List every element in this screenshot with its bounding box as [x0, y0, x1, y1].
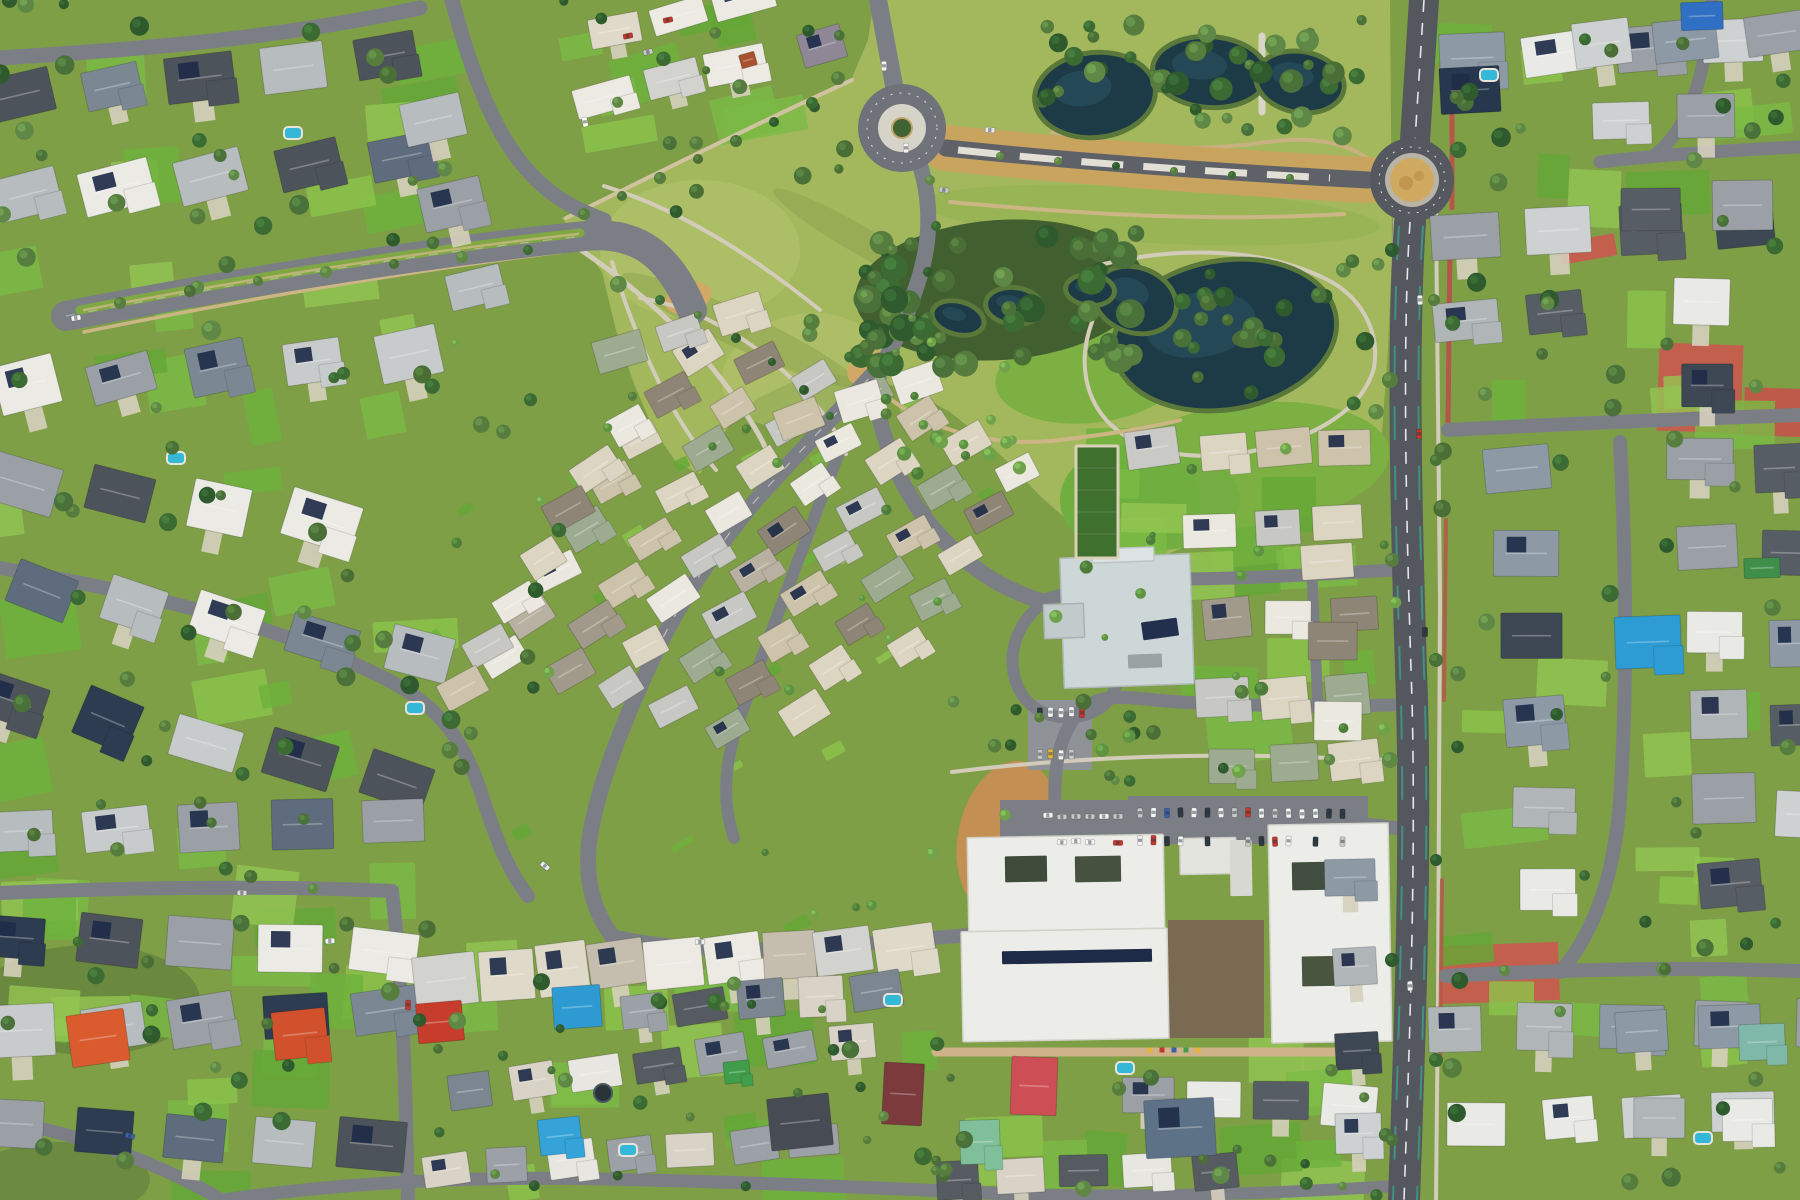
- house: [258, 924, 323, 972]
- tree-highlight: [1202, 296, 1210, 304]
- tree-highlight: [1501, 966, 1506, 971]
- tree-highlight: [1191, 105, 1196, 110]
- tree-highlight: [808, 99, 813, 104]
- tree-highlight: [888, 246, 893, 251]
- tree-highlight: [1071, 316, 1079, 324]
- tree-highlight: [1081, 562, 1087, 568]
- car: [1272, 808, 1277, 818]
- car: [1151, 835, 1156, 845]
- tree-highlight: [1126, 17, 1135, 26]
- tree-highlight: [1199, 1156, 1204, 1161]
- tree-highlight: [56, 494, 65, 503]
- car: [1191, 808, 1197, 818]
- house: [478, 948, 536, 1002]
- house: [362, 799, 425, 844]
- tree-highlight: [1768, 240, 1776, 248]
- tree-highlight: [1124, 731, 1130, 737]
- tree-highlight: [444, 744, 452, 752]
- tree-highlight: [936, 333, 941, 338]
- tree-highlight: [330, 964, 335, 969]
- building-detail: [1002, 949, 1152, 965]
- tree-highlight: [1672, 798, 1677, 803]
- tree-highlight: [1042, 22, 1048, 28]
- tree-highlight: [935, 272, 945, 282]
- house: [1124, 426, 1181, 471]
- tree-highlight: [1282, 72, 1293, 83]
- car: [1326, 809, 1332, 819]
- tree-highlight: [1451, 92, 1457, 98]
- building: [967, 834, 1165, 931]
- tree-highlight: [748, 1001, 752, 1005]
- tree-highlight: [97, 800, 102, 805]
- tree-highlight: [1453, 742, 1459, 748]
- tree-highlight: [491, 1170, 495, 1174]
- tree-highlight: [1340, 724, 1344, 728]
- tree-highlight: [1124, 347, 1134, 357]
- house: [1738, 1023, 1787, 1066]
- tree-highlight: [1381, 541, 1385, 545]
- tree-highlight: [864, 1137, 868, 1141]
- tree-highlight: [1480, 616, 1488, 624]
- tree-highlight: [811, 910, 815, 914]
- tree-highlight: [1325, 64, 1335, 74]
- tree-highlight: [612, 278, 620, 286]
- tree-highlight: [1437, 445, 1445, 453]
- tree-highlight: [928, 849, 933, 854]
- tree-highlight: [1081, 303, 1091, 313]
- tree-highlight: [1360, 1093, 1365, 1098]
- tree-highlight: [341, 919, 348, 926]
- tree-highlight: [161, 515, 169, 523]
- car: [1340, 837, 1345, 847]
- tree-highlight: [466, 728, 472, 734]
- tree-highlight: [861, 266, 868, 273]
- tree-highlight: [1430, 296, 1435, 301]
- house: [766, 1093, 833, 1151]
- car: [1313, 808, 1319, 818]
- house: [1265, 601, 1313, 640]
- tree-highlight: [1077, 1183, 1084, 1190]
- tree-highlight: [1469, 275, 1478, 284]
- tree-highlight: [687, 1114, 691, 1118]
- tree-highlight: [1237, 571, 1242, 576]
- tree-highlight: [882, 395, 887, 400]
- tree-highlight: [1661, 965, 1666, 970]
- house: [421, 1151, 471, 1189]
- house: [665, 1132, 714, 1168]
- tree-highlight: [860, 596, 863, 599]
- house: [1722, 1098, 1775, 1148]
- tree-highlight: [1335, 129, 1344, 138]
- tree-highlight: [884, 289, 896, 301]
- tree-highlight: [695, 312, 699, 316]
- tree-highlight: [1188, 465, 1193, 470]
- lawn-patch: [1643, 732, 1692, 778]
- tree-highlight: [1447, 318, 1454, 325]
- tree-highlight: [1370, 406, 1377, 413]
- tree-highlight: [1266, 348, 1276, 358]
- tree-highlight: [132, 19, 141, 28]
- tree-highlight: [390, 260, 395, 265]
- tree-highlight: [1542, 298, 1548, 304]
- car: [1178, 808, 1184, 818]
- tree-highlight: [1001, 363, 1006, 368]
- tree-highlight: [211, 1063, 216, 1068]
- tree-highlight: [597, 14, 602, 19]
- lawn-patch: [1121, 503, 1187, 534]
- tree-highlight: [956, 354, 968, 366]
- tree-highlight: [1775, 1163, 1780, 1168]
- tree-highlight: [1229, 172, 1233, 176]
- tree-highlight: [1445, 1061, 1454, 1070]
- tree-highlight: [1387, 245, 1393, 251]
- tree-highlight: [1718, 1103, 1724, 1109]
- tree-highlight: [292, 197, 301, 206]
- car: [1178, 836, 1184, 846]
- tree-highlight: [60, 0, 65, 5]
- tree-highlight: [819, 1006, 823, 1010]
- tree-highlight: [1358, 16, 1363, 21]
- tree-highlight: [844, 1043, 852, 1051]
- tree-highlight: [1234, 766, 1240, 772]
- tree-highlight: [1090, 346, 1098, 354]
- house: [1494, 530, 1559, 576]
- tree-highlight: [936, 436, 942, 442]
- tree-highlight: [1266, 1156, 1271, 1161]
- tree-highlight: [1014, 463, 1020, 469]
- car: [1313, 837, 1318, 847]
- tree-highlight: [13, 374, 20, 381]
- tree-highlight: [1348, 398, 1354, 404]
- tree-highlight: [110, 196, 118, 204]
- tree-highlight: [263, 1019, 268, 1024]
- playground-object: [1148, 1048, 1153, 1053]
- tree-highlight: [1384, 374, 1391, 381]
- house: [1769, 620, 1800, 668]
- road: [0, 888, 392, 893]
- tree-highlight: [838, 142, 846, 150]
- tree-highlight: [1036, 714, 1041, 719]
- tree-highlight: [537, 497, 541, 501]
- tree-highlight: [1153, 72, 1164, 83]
- tree-highlight: [544, 668, 549, 673]
- tree-highlight: [1538, 350, 1543, 355]
- tree-highlight: [932, 1039, 938, 1045]
- car: [1071, 838, 1081, 843]
- tree-highlight: [829, 1046, 834, 1051]
- tree-highlight: [694, 155, 699, 160]
- tree-highlight: [835, 31, 840, 36]
- house: [812, 925, 874, 977]
- lawn-patch: [1659, 876, 1699, 905]
- tree-highlight: [458, 253, 463, 258]
- building: [1076, 446, 1118, 558]
- car: [1071, 814, 1081, 819]
- house: [1428, 1006, 1482, 1053]
- tree-highlight: [1731, 483, 1736, 488]
- sand-mottle: [1399, 176, 1413, 190]
- tree-highlight: [237, 769, 243, 775]
- tree-highlight: [958, 1133, 966, 1141]
- tree-highlight: [1688, 154, 1695, 161]
- tree-highlight: [716, 668, 721, 673]
- aerial-suburb-scene: [0, 0, 1800, 1200]
- tree-highlight: [1517, 125, 1522, 130]
- tree-highlight: [415, 368, 423, 376]
- tree-highlight: [246, 872, 252, 878]
- tree-highlight: [806, 316, 813, 323]
- house: [411, 951, 479, 1009]
- tree-highlight: [1113, 163, 1117, 167]
- tree-highlight: [656, 296, 661, 301]
- car: [1069, 749, 1074, 759]
- tree-highlight: [949, 697, 954, 702]
- tree-highlight: [15, 696, 23, 704]
- car: [1057, 839, 1067, 845]
- tree-highlight: [1373, 260, 1379, 266]
- car: [1057, 814, 1067, 819]
- tree-highlight: [614, 1172, 618, 1176]
- tree-highlight: [29, 830, 35, 836]
- swimming-pool: [406, 702, 424, 714]
- tree-highlight: [299, 607, 305, 613]
- tree-highlight: [548, 1067, 552, 1071]
- aerial-photo: [0, 0, 1800, 1200]
- tree-highlight: [1087, 730, 1092, 735]
- tree-highlight: [984, 449, 991, 456]
- swimming-pool: [284, 127, 302, 139]
- tree-highlight: [1606, 401, 1614, 409]
- tree-highlight: [1089, 33, 1094, 38]
- car: [695, 939, 705, 945]
- tree-highlight: [377, 633, 385, 641]
- playground-object: [1160, 1048, 1165, 1053]
- tree-highlight: [1301, 1178, 1307, 1184]
- tree-highlight: [932, 222, 937, 227]
- swimming-pool: [884, 994, 902, 1006]
- tree-highlight: [1494, 130, 1503, 139]
- car: [1299, 809, 1304, 819]
- tree-highlight: [800, 386, 805, 391]
- tree-highlight: [1125, 712, 1131, 718]
- house: [1312, 504, 1363, 541]
- tree-highlight: [618, 192, 623, 197]
- tree-highlight: [1678, 38, 1684, 44]
- tree-highlight: [1245, 320, 1255, 330]
- walking-path: [1444, 520, 1446, 700]
- tree-highlight: [530, 584, 537, 591]
- tree-highlight: [112, 844, 118, 850]
- tree-highlight: [1234, 1146, 1238, 1150]
- tree-highlight: [893, 349, 897, 353]
- tree-highlight: [1120, 303, 1133, 316]
- tree-highlight: [1608, 367, 1617, 376]
- tree-highlight: [960, 441, 964, 445]
- tree-highlight: [415, 1015, 421, 1021]
- car: [939, 187, 949, 193]
- tree-highlight: [1387, 955, 1393, 961]
- tree-highlight: [142, 757, 147, 762]
- tree-highlight: [300, 815, 305, 820]
- building: [1268, 823, 1392, 1043]
- tree-highlight: [1782, 741, 1789, 748]
- tree-highlight: [1302, 1160, 1306, 1164]
- tree-highlight: [221, 863, 227, 869]
- tree-highlight: [1054, 87, 1059, 92]
- tree-highlight: [72, 592, 79, 599]
- house: [1195, 677, 1253, 724]
- tree-highlight: [671, 207, 677, 213]
- tree-highlight: [451, 1014, 459, 1022]
- building-detail: [1005, 856, 1047, 883]
- tree-highlight: [1436, 502, 1444, 510]
- tree-highlight: [1718, 216, 1723, 221]
- playground-object: [1196, 1048, 1201, 1053]
- tree-highlight: [1581, 871, 1586, 876]
- car: [1113, 840, 1123, 845]
- tree-highlight: [861, 322, 870, 331]
- tree-highlight: [230, 171, 235, 176]
- tree-highlight: [1097, 745, 1103, 751]
- tree-highlight: [1214, 1169, 1222, 1177]
- house: [1520, 869, 1578, 917]
- car: [1416, 429, 1422, 439]
- tree-highlight: [1150, 533, 1153, 536]
- tree-highlight: [1176, 295, 1183, 302]
- tree-highlight: [554, 525, 561, 532]
- tree-highlight: [1148, 727, 1155, 734]
- tree-highlight: [1040, 91, 1048, 99]
- tree-highlight: [1012, 706, 1017, 711]
- tree-highlight: [656, 174, 661, 179]
- car: [1218, 808, 1224, 818]
- tree-highlight: [1372, 1191, 1378, 1197]
- car: [1069, 707, 1074, 717]
- tree-highlight: [1431, 655, 1437, 661]
- tree-highlight: [57, 58, 66, 67]
- building-detail: [1075, 856, 1121, 883]
- tree-highlight: [1347, 256, 1353, 262]
- playground-object: [1172, 1048, 1177, 1053]
- tree-highlight: [1126, 53, 1131, 58]
- tree-highlight: [192, 210, 199, 217]
- tree-highlight: [535, 975, 543, 983]
- tree-highlight: [1580, 35, 1585, 40]
- tree-highlight: [1125, 777, 1130, 782]
- tree-highlight: [1358, 334, 1366, 342]
- tree-highlight: [309, 885, 314, 890]
- tree-highlight: [403, 678, 411, 686]
- tree-highlight: [1267, 37, 1276, 46]
- tree-highlight: [1055, 158, 1059, 162]
- tree-highlight: [1338, 265, 1345, 272]
- tree-highlight: [322, 268, 327, 273]
- tree-highlight: [529, 683, 535, 689]
- tree-highlight: [629, 393, 633, 397]
- house: [336, 1116, 408, 1172]
- tree-highlight: [1212, 80, 1222, 90]
- tree-highlight: [794, 1089, 798, 1093]
- tree-highlight: [1432, 456, 1437, 461]
- tree-highlight: [990, 741, 996, 747]
- building: [1043, 603, 1084, 638]
- tree-highlight: [1078, 696, 1085, 703]
- tree-highlight: [1206, 270, 1211, 275]
- tree-highlight: [1256, 684, 1262, 690]
- tree-highlight: [762, 850, 765, 853]
- ground-patch: [1168, 920, 1264, 1038]
- house: [798, 975, 847, 1024]
- tree-highlight: [1278, 301, 1286, 309]
- house: [1183, 513, 1237, 548]
- tree-highlight: [1661, 540, 1668, 547]
- tree-highlight: [709, 996, 717, 1004]
- tree-highlight: [428, 238, 434, 244]
- car: [1259, 808, 1264, 818]
- tree-highlight: [530, 1182, 535, 1187]
- tree-highlight: [941, 1164, 947, 1170]
- tree-highlight: [1130, 227, 1137, 234]
- tree-highlight: [522, 651, 529, 658]
- tree-highlight: [1604, 587, 1612, 595]
- tree-highlight: [853, 904, 857, 908]
- tree-highlight: [1114, 1083, 1120, 1089]
- car: [1099, 814, 1109, 819]
- tree-highlight: [613, 98, 618, 103]
- tree-highlight: [339, 670, 348, 679]
- tree-highlight: [1662, 339, 1668, 345]
- tree-highlight: [37, 1140, 45, 1148]
- tree-highlight: [1463, 85, 1471, 93]
- tree-highlight: [1106, 771, 1111, 776]
- lawn-patch: [359, 391, 406, 440]
- house: [1010, 1056, 1058, 1116]
- tree-highlight: [381, 68, 389, 76]
- tree-highlight: [1255, 547, 1260, 552]
- tree-highlight: [1766, 601, 1773, 608]
- car: [1048, 707, 1053, 717]
- car: [1164, 808, 1170, 818]
- tree-highlight: [1742, 939, 1748, 945]
- tree-highlight: [703, 67, 707, 71]
- tree-highlight: [524, 246, 529, 251]
- tree-highlight: [1668, 433, 1676, 441]
- tree-highlight: [919, 345, 928, 354]
- tree-highlight: [1233, 673, 1237, 677]
- tree-highlight: [1492, 176, 1500, 184]
- tree-highlight: [526, 395, 532, 401]
- tree-highlight: [235, 917, 243, 925]
- tree-highlight: [711, 29, 716, 34]
- car: [1259, 836, 1264, 846]
- tree-highlight: [1085, 22, 1090, 27]
- tree-highlight: [928, 338, 932, 342]
- tree-highlight: [1168, 74, 1179, 85]
- house: [1308, 622, 1357, 660]
- tree-highlight: [339, 368, 345, 374]
- tree-highlight: [653, 995, 660, 1002]
- tree-highlight: [580, 210, 585, 215]
- house: [1512, 787, 1577, 835]
- tree-highlight: [743, 425, 747, 429]
- tree-highlight: [368, 51, 376, 59]
- tree-highlight: [161, 722, 166, 727]
- tree-highlight: [196, 1105, 204, 1113]
- tree-highlight: [1452, 144, 1459, 151]
- tree-highlight: [909, 315, 913, 319]
- car: [1340, 809, 1345, 819]
- house: [66, 1008, 131, 1068]
